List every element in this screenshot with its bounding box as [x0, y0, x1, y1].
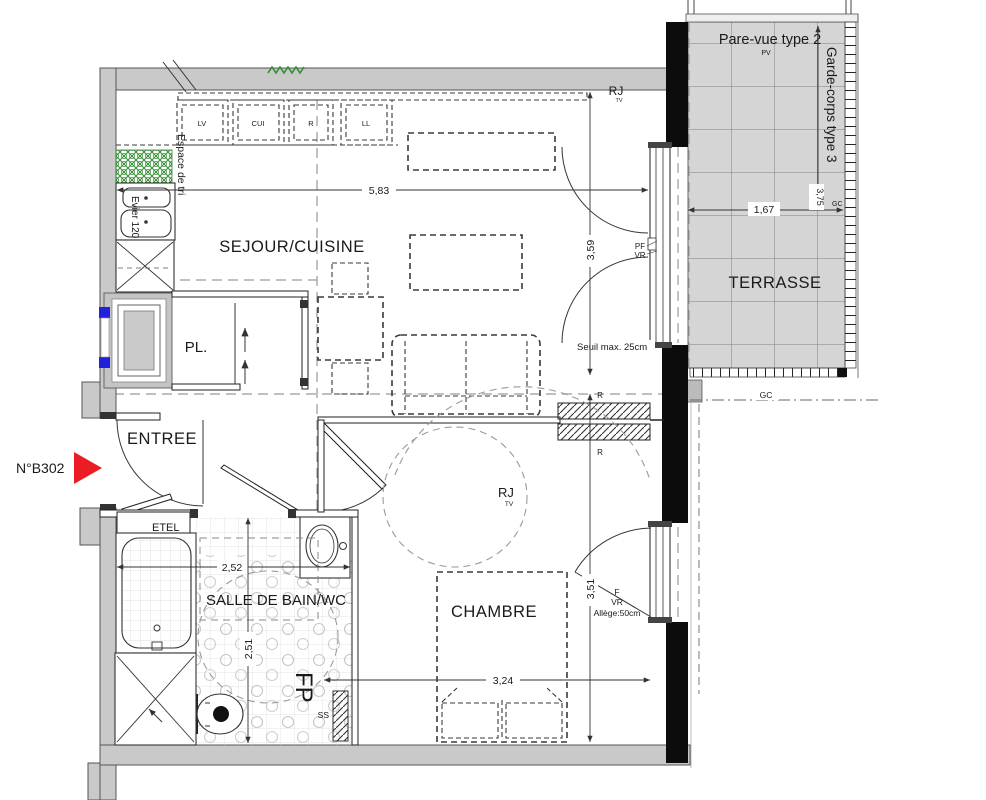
bathroom-depth-dim: 2,51 — [243, 639, 255, 660]
terrace-gc-side: GC — [832, 201, 843, 208]
appliance-fridge: R — [289, 100, 333, 145]
elevator — [99, 293, 172, 388]
living-window-shutter: VR — [634, 251, 645, 260]
rj-bedroom-sub: TV — [505, 501, 514, 508]
kitchen-area: LV CUI R LL Espace de tri Evier 120 — [116, 93, 587, 292]
threshold-label: Seuil max. 25cm — [577, 342, 647, 353]
bathroom-label: SALLE DE BAIN/WC — [206, 592, 346, 609]
etel-label: ETEL — [152, 522, 180, 534]
floor-plan: Pare-vue type 2 PV Garde-corps type 3 TE… — [0, 0, 986, 800]
bedroom-window-sill: Allège:50cm — [594, 608, 641, 618]
unit-number: N°B302 — [16, 460, 65, 476]
r-bottom-label: R — [597, 448, 603, 457]
terrace-railing-right — [845, 22, 856, 368]
bedroom-width-dim: 3,24 — [493, 675, 514, 687]
ss-label: SS — [318, 710, 330, 720]
terrace-railing-label: Garde-corps type 3 — [824, 47, 839, 163]
bathroom-technical-box — [115, 653, 196, 745]
unit-arrow — [74, 452, 102, 484]
elevator-door-bottom — [99, 357, 110, 368]
bedroom-label: CHAMBRE — [451, 603, 537, 621]
kitchen-technical-box — [116, 240, 174, 292]
sink-label: Evier 120 — [129, 196, 140, 239]
terrace-room-label: TERRASSE — [729, 274, 822, 292]
closet-pl: PL. — [172, 291, 308, 390]
living-width-dim: 5,83 — [369, 185, 390, 197]
appliance-washer: LL — [341, 100, 392, 145]
unit-marker: N°B302 — [16, 452, 102, 484]
sofa — [392, 335, 540, 418]
appliance-cui: CUI — [233, 100, 284, 145]
appliance-cui-label: CUI — [252, 119, 265, 128]
living-room-label: SEJOUR/CUISINE — [219, 238, 364, 256]
living-window-type: PF — [635, 242, 645, 251]
terrace-width-dim: 1,67 — [754, 204, 775, 216]
rj-bedroom-label: RJ — [498, 485, 514, 500]
bathroom-width-dim: 2,52 — [222, 562, 243, 574]
living-window: PF VR — [562, 142, 678, 348]
bedroom-window-shutter: VR — [611, 597, 623, 607]
appliance-washer-label: LL — [362, 119, 370, 128]
sorting-area — [116, 150, 172, 185]
partition-living-bedroom: R R — [318, 391, 664, 457]
terrace-screen-label: Pare-vue type 2 — [719, 32, 821, 48]
appliance-lv-label: LV — [198, 119, 207, 128]
bathtub — [116, 533, 196, 653]
bed — [437, 572, 567, 742]
terrace-railing-bottom — [690, 368, 845, 377]
terrace-depth-dim: 3,75 — [815, 188, 825, 206]
bedroom-window-type: F — [614, 587, 619, 597]
elevator-door-top — [99, 307, 110, 318]
terrace-area: Pare-vue type 2 PV Garde-corps type 3 TE… — [684, 0, 882, 768]
ss-drain — [333, 691, 348, 741]
sorting-area-label: Espace de tri — [175, 134, 187, 195]
r-top-label: R — [597, 391, 603, 400]
rj-living-label: RJ — [609, 84, 624, 98]
bedroom-depth-dim: 3,51 — [585, 579, 597, 600]
washbasin — [300, 517, 350, 578]
kitchen-sink: Evier 120 — [116, 183, 175, 240]
dining-table — [318, 263, 383, 394]
terrace-top-edge — [686, 14, 858, 22]
coffee-table — [410, 235, 522, 290]
rj-living-sub: TV — [615, 98, 622, 104]
sideboard — [408, 133, 555, 170]
entrance-area: ENTREE — [116, 413, 386, 514]
living-depth-dim: 3,59 — [585, 240, 597, 261]
gc-line-label: GC — [760, 390, 773, 400]
appliance-fridge-label: R — [308, 119, 314, 128]
bedroom-door — [320, 423, 386, 489]
terrace-screen-abbr: PV — [761, 50, 771, 57]
closet-pl-label: PL. — [185, 339, 208, 356]
entrance-door-leaf — [221, 465, 298, 513]
fp-label: FP — [290, 672, 317, 703]
entrance-label: ENTREE — [127, 430, 197, 448]
